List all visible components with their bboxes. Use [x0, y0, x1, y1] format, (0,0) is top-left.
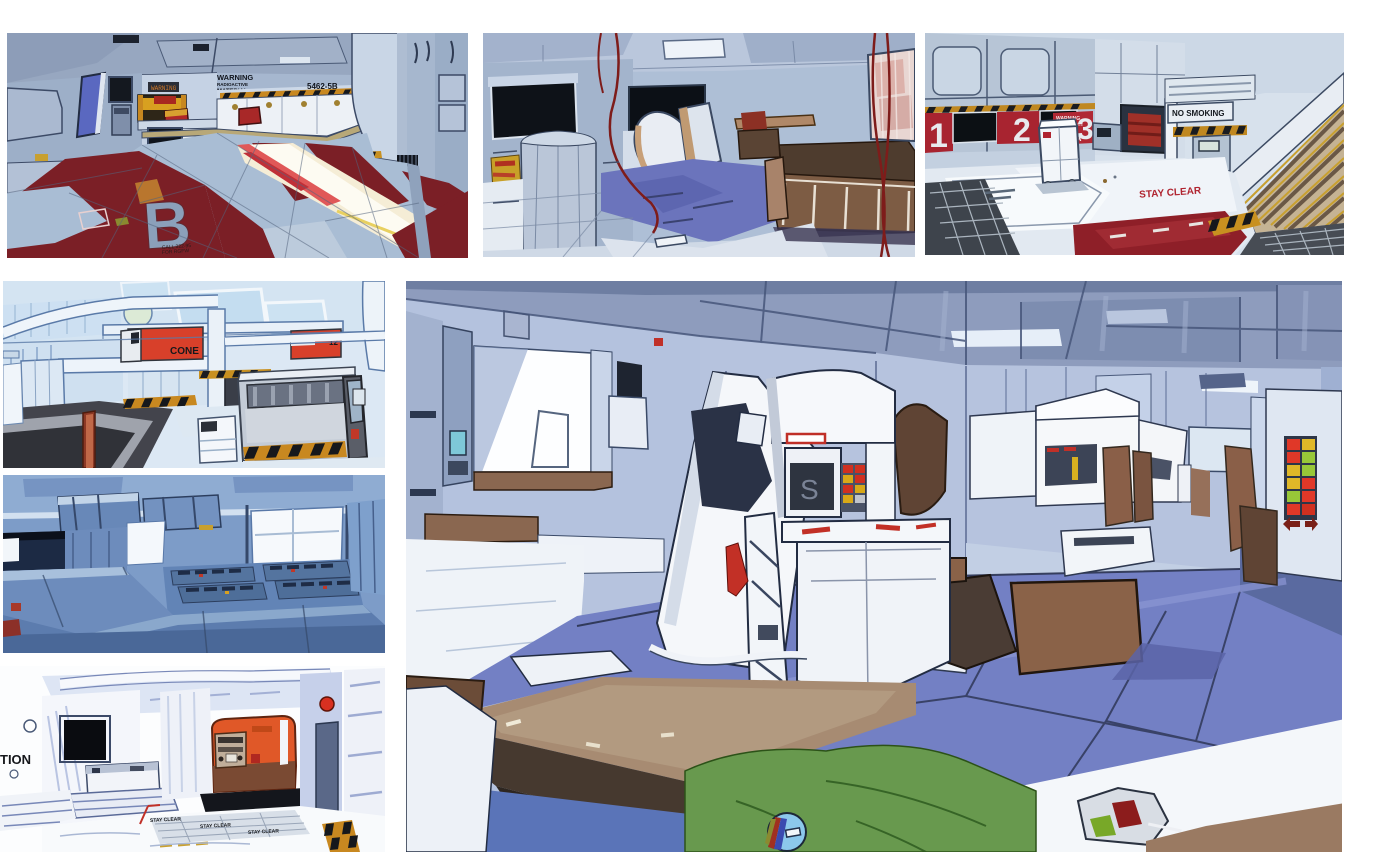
svg-text:1: 1 [929, 117, 948, 155]
svg-text:TION: TION [0, 752, 31, 767]
svg-text:CONE: CONE [170, 346, 199, 357]
svg-text:WARNING: WARNING [217, 73, 253, 82]
svg-text:S: S [800, 474, 819, 505]
svg-text:RADIOACTIVE: RADIOACTIVE [217, 82, 248, 87]
svg-text:3: 3 [1077, 113, 1094, 146]
svg-text:WARNING: WARNING [151, 85, 177, 92]
svg-text:NO SMOKING: NO SMOKING [1172, 109, 1224, 118]
svg-text:2: 2 [1013, 112, 1031, 148]
